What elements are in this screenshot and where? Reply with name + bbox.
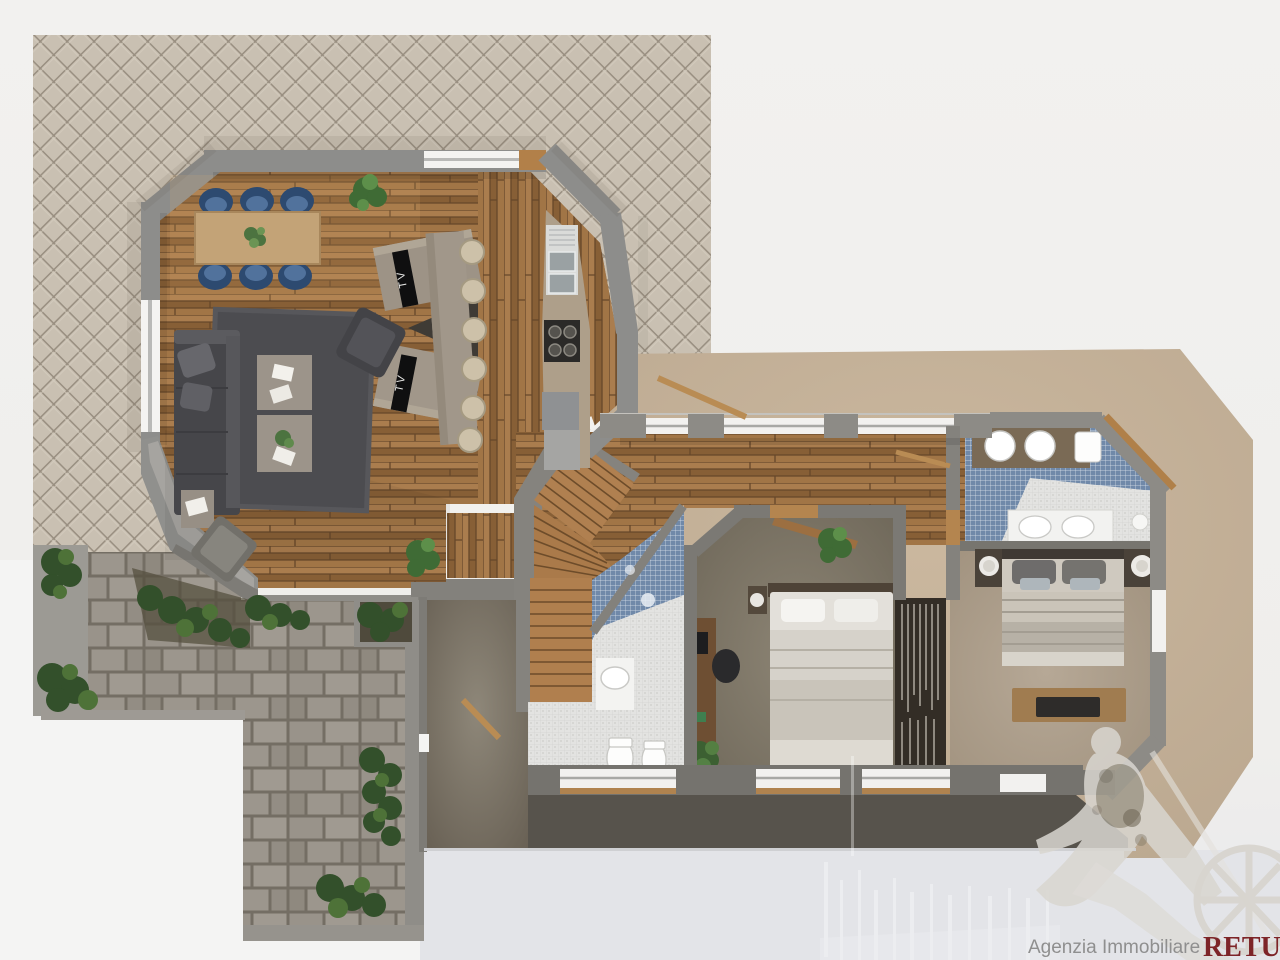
svg-text:Agenzia Immobiliare: Agenzia Immobiliare [1028,937,1200,958]
svg-text:RETUS: RETUS [1203,932,1280,960]
